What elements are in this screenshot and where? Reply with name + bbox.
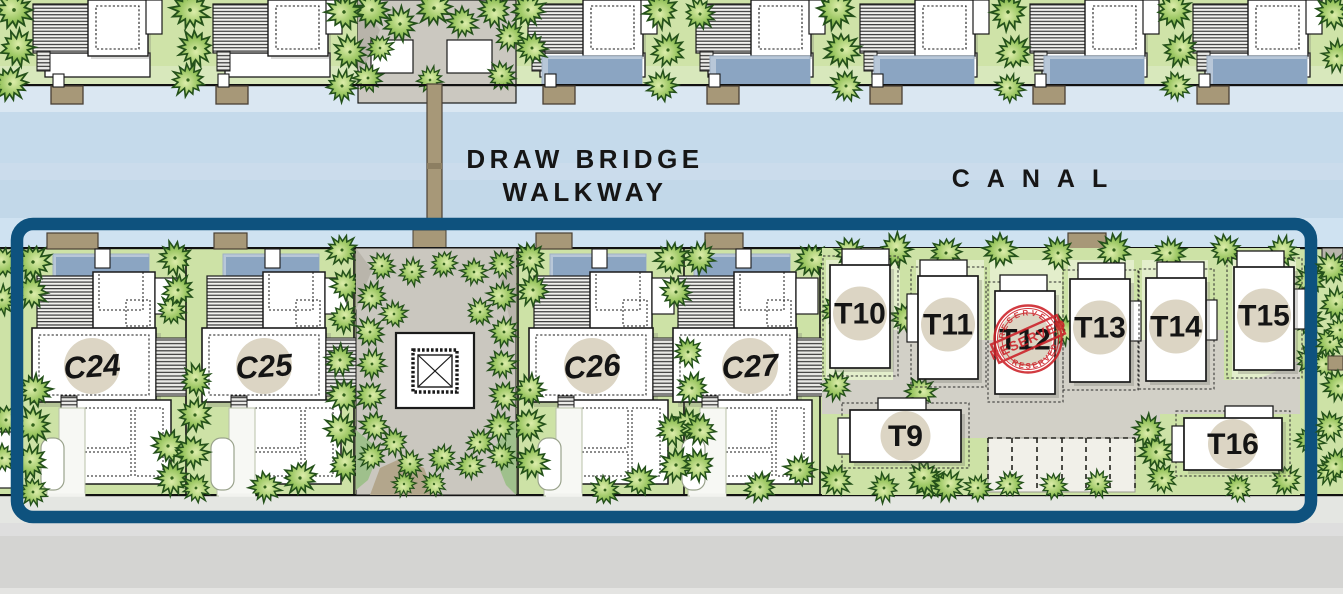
- svg-text:T15: T15: [1238, 300, 1290, 333]
- svg-text:WALKWAY: WALKWAY: [503, 177, 668, 207]
- svg-text:T10: T10: [834, 298, 886, 331]
- svg-text:T13: T13: [1074, 312, 1126, 345]
- svg-text:T16: T16: [1207, 428, 1259, 461]
- svg-text:C26: C26: [562, 347, 622, 386]
- svg-text:C27: C27: [720, 347, 781, 386]
- svg-text:CANAL: CANAL: [952, 165, 1125, 193]
- svg-text:DRAW BRIDGE: DRAW BRIDGE: [466, 144, 703, 174]
- svg-text:T14: T14: [1150, 311, 1202, 344]
- svg-text:T9: T9: [888, 420, 923, 453]
- svg-text:T11: T11: [923, 309, 973, 342]
- svg-text:C25: C25: [234, 347, 294, 386]
- svg-text:C24: C24: [62, 347, 121, 386]
